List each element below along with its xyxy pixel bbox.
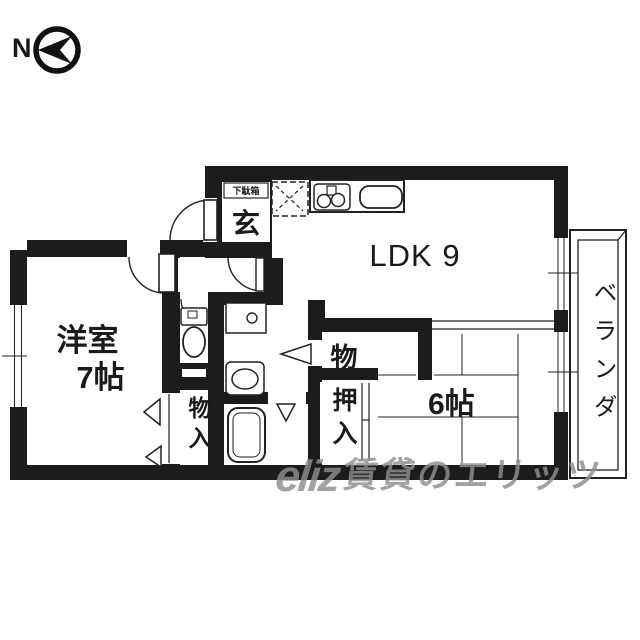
closet-monoire-door [162, 393, 180, 464]
toilet-room [180, 297, 208, 363]
closet-oshiire-label: 押入 [325, 387, 361, 453]
watermark: eliz 賃貸のエリッツ [273, 447, 605, 502]
wall-hall-ldk [264, 258, 283, 305]
corridor [178, 258, 264, 292]
closet-mono-label: 物 [322, 336, 366, 375]
wall-mono-stub [418, 332, 432, 380]
compass-label: N [12, 33, 32, 64]
washroom [224, 305, 308, 392]
window-veranda-lower [554, 332, 568, 412]
floor-plan: N 下駄箱 玄 LDK 9 洋室 7帖 物 押入 物入 6帖 ベランダ eliz… [0, 0, 640, 640]
closet-monoire-label: 物入 [181, 396, 215, 456]
shoe-cabinet-label: 下駄箱 [224, 184, 268, 197]
wall-right-tick [554, 310, 568, 332]
monoire-door-marker-icon [144, 399, 160, 425]
ldk-label: LDK 9 [350, 238, 480, 274]
wall-right-upper [554, 180, 568, 238]
kitchen-sink-icon [360, 186, 402, 208]
watermark-logo: eliz [273, 452, 341, 501]
monoire-door-marker-icon [146, 446, 161, 467]
wall-western-top [27, 240, 215, 257]
refrigerator-space-icon [272, 182, 308, 216]
watermark-text: 賃貸のエリッツ [341, 456, 604, 495]
bath-door-opening [268, 392, 306, 404]
window-veranda-upper [554, 238, 568, 310]
stove-icon [314, 184, 350, 210]
shelf-slot [182, 369, 206, 377]
entrance-label: 玄 [222, 202, 270, 242]
kitchen-counter [310, 180, 404, 212]
western-doorway [127, 240, 160, 257]
veranda-label: ベランダ [585, 280, 620, 432]
western-room-size: 7帖 [38, 352, 163, 397]
compass-north-arrow-icon [36, 29, 78, 71]
wall-ldk-bottom [325, 318, 432, 332]
tatami-room-label: 6帖 [428, 379, 475, 423]
front-door-opening [203, 198, 217, 242]
ldk-tatami-sliding-door [432, 318, 554, 332]
